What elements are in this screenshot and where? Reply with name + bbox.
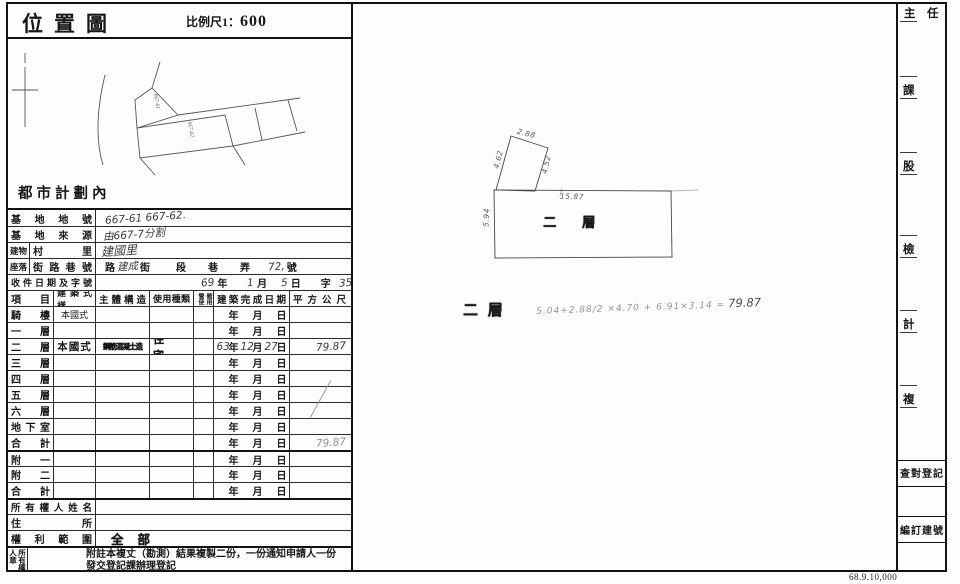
floor-label-below: 二 層 [463,299,506,320]
floor-row-6f: 六層 年月日 [8,402,351,418]
note-row: 所有權人章 附註本複丈（勘測）結果複製二份，一份通知申請人一份發交登記課辦理登記 [8,546,351,572]
receipt-label: 收件日期及字號 [11,276,92,289]
floor-style: 本國式 [61,308,88,321]
total-area-value: 79.87 [316,435,347,449]
rights-label: 權利範圍 [11,531,92,546]
receipt-row: 收件日期及字號 69 年 1 月 5 日 字 356 號 [8,274,351,290]
approver-inspect: 檢 [903,241,915,257]
floor-area: 79.87 [316,339,347,353]
approver-unit: 股 [903,158,915,174]
address-row: 住所 [8,514,351,530]
floor-item-label: 附一 [11,452,50,466]
floors-header-row: 項目 建築式樣 主體構造 使用種類 營使 雜用 建築完成日期 平方公尺 [8,290,351,306]
floor-item-label: 六層 [11,403,50,418]
scale-prefix: 比例尺1： [186,15,240,29]
plan-extension-line [671,190,698,191]
street-label: 街路巷號 [33,259,92,274]
header-tiny-2: 雜用 [204,293,211,305]
floor-item-label: 四層 [11,371,50,386]
boundary-line-2 [233,132,305,146]
street-row: 座落 街路巷號 路 建成 街 段 巷 弄 72, 號 [8,258,351,274]
header-structure: 主體構造 [99,292,146,306]
unit-alley: 弄 [240,259,250,274]
village-label: 村里 [33,243,92,258]
receipt-day-unit: 日 [291,275,301,290]
stray-line-bottom-2 [233,146,245,165]
annex-row-1: 附一 年月日 [8,450,351,466]
floor-item-label: 一層 [11,323,50,338]
floor-row-5f: 五層 年月日 [8,386,351,402]
owner-name-row: 所有權人姓名 [8,498,351,514]
unit-street: 街 [140,259,150,274]
floor-item-label: 五層 [11,387,50,402]
location-label: 座落 [10,261,27,273]
receipt-month-unit: 月 [257,275,267,290]
print-code: 68.9.10,000 [849,572,897,582]
floor-row-2f: 二層 本國式 鋼筋混凝土造 住宅 63年12月27日 79.87 [8,338,351,354]
rights-value: 全部 [111,531,164,546]
receipt-char-unit: 字 [321,275,331,290]
owner-name-label: 所有權人姓名 [11,500,92,514]
panel-divider [351,2,353,572]
street-name-value: 建成 [117,259,139,274]
floor-item-label: 三層 [11,355,50,370]
floor-row-4f: 四層 年月日 [8,370,351,386]
scanned-survey-form: 位置圖 比例尺1：600 667-61 667-62 都市計劃內 基地地號 6 [0,0,960,584]
dim-main-left: 5.94 [481,208,491,227]
floor-use: 住宅 [153,339,190,354]
title-block: 位置圖 比例尺1：600 [8,4,351,37]
floor-row-3f: 三層 年月日 [8,354,351,370]
header-item: 項目 [11,291,50,306]
floor-row-total: 合計 年月日 79.87 [8,434,351,450]
floor-item-label: 合計 [11,483,50,498]
approval-strip: 主 任 課 股 檢 計 複 查對登記 編訂建號 [898,3,946,569]
floor-structure: 鋼筋混凝土造 [103,341,142,352]
receipt-day-value: 5 [281,276,289,288]
owner-seal-label: 所有權人章 [9,549,27,572]
header-area: 平方公尺 [293,292,346,306]
check-registration-label: 查對登記 [898,465,946,480]
unit-road: 路 [105,259,115,274]
unit-lane: 巷 [208,259,218,274]
approver-director-1: 主 [904,5,916,21]
receipt-year-unit: 年 [217,275,227,290]
boundary-line-1 [178,98,300,115]
floor-item-label: 附二 [11,467,50,482]
floor-item-label: 騎樓 [11,307,50,322]
header-tiny-1: 營使 [196,293,203,305]
cross-line-1 [288,100,297,131]
annex-total-row: 合計 年月日 [8,482,351,498]
unit-number: 號 [287,259,297,274]
plan-annex-outline [496,136,548,191]
site-source-label: 基地來源 [11,227,92,242]
site-info-table: 基地地號 667-61 667-62. 基地來源 由667-7分割 建物 村里 … [8,208,351,572]
house-number-value: 72, [268,260,285,273]
site-source-row: 基地來源 由667-7分割 [8,226,351,242]
cross-line-2 [255,108,262,140]
floor-row-arcade: 騎樓 本國式 年月日 [8,306,351,322]
building-label: 建物 [10,245,27,257]
scale-value: 600 [240,13,267,30]
site-source-value: 由667-7分割 [103,227,166,242]
address-label: 住所 [11,515,92,530]
site-number-value: 667-61 667-62. [105,210,187,226]
road-curve [98,75,105,165]
header-date: 建築完成日期 [217,292,286,306]
approver-director-2: 任 [927,5,939,21]
rights-row: 權利範圍 全部 [8,530,351,546]
approver-section: 課 [903,82,915,98]
approver-recheck: 複 [903,391,915,407]
formula-result: 79.87 [728,295,761,310]
floor-plan-panel: 二 層 二 層 5.04+2.88/2 ×4.70 + 6.91×3.14 =7… [353,3,896,569]
stray-line-bottom-1 [140,158,155,175]
urban-plan-note: 都市計劃內 [18,182,111,203]
approver-calc: 計 [903,316,915,332]
assign-building-number-label: 編訂建號 [898,522,946,537]
floor-style: 本國式 [57,339,92,354]
floor-label-inside: 二 層 [543,211,602,231]
survey-note: 附註本複丈（勘測）結果複製二份，一份通知申請人一份發交登記課辦理登記 [28,548,351,572]
dim-main-top: 15.87 [560,192,584,202]
strip-divider [896,2,898,572]
parcel-lower [137,115,233,158]
village-value: 建國里 [100,243,137,258]
floor-plan-drawing [353,3,896,569]
village-row: 建物 村里 建國里 [8,242,351,258]
annex-row-2: 附二 年月日 [8,466,351,482]
receipt-year-value: 69 [201,276,215,289]
header-use: 使用種類 [153,292,190,305]
floor-row-basement: 地下室 年月日 [8,418,351,434]
floor-item-label: 合計 [11,435,50,450]
page-title: 位置圖 [22,8,118,38]
stray-line-top [152,62,160,88]
site-number-label: 基地地號 [11,211,92,226]
receipt-month-value: 1 [247,276,255,288]
floor-item-label: 地下室 [11,419,50,434]
parcel-label-2: 667-62 [186,121,195,138]
scale-label: 比例尺1：600 [186,13,267,31]
unit-section: 段 [176,259,186,274]
site-number-row: 基地地號 667-61 667-62. [8,210,351,226]
floor-row-1f: 一層 年月日 [8,322,351,338]
floor-item-label: 二層 [11,339,50,354]
receipt-number-value: 356 [338,276,351,289]
header-style: 建築式樣 [57,291,92,306]
